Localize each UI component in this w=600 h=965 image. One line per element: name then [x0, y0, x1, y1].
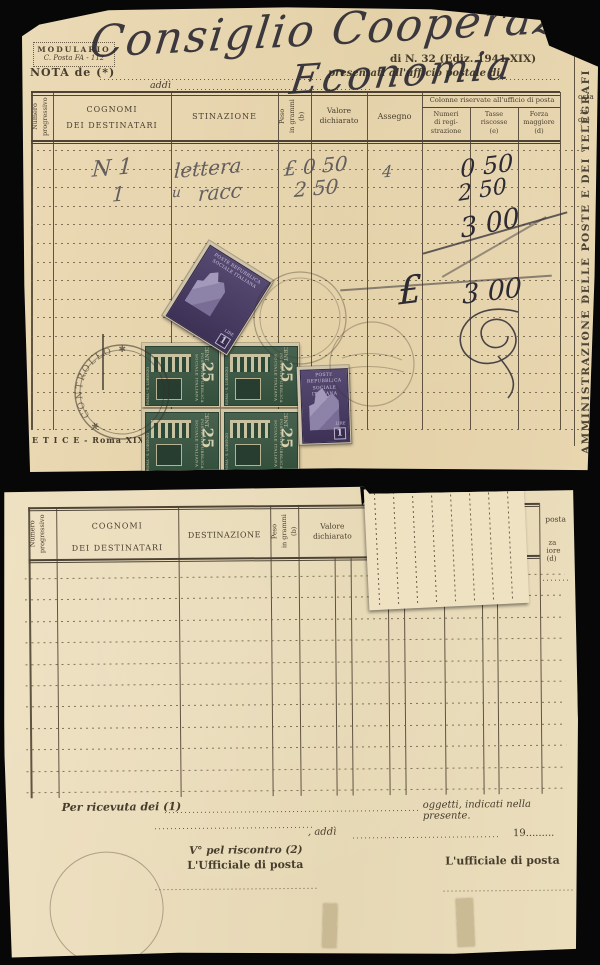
col-assegno: Assegno [367, 112, 422, 122]
ruled-row [26, 723, 566, 729]
stamp-unit-label: CENT. [203, 346, 209, 362]
rule-line [298, 505, 302, 796]
ricevuta-label: Per ricevuta dei (1) [62, 800, 182, 814]
fragment-dotted-rule [469, 488, 475, 600]
green-stamp-25c: ROMA - S. LORENZO POSTE REPUBBLICA SOCIA… [221, 409, 299, 473]
ruled-row [25, 638, 565, 644]
colonnade-motif [230, 420, 270, 438]
col-cognomi: COGNOMI DEI DESTINATARI [56, 515, 178, 559]
rule-line [539, 503, 543, 794]
entry-total-lira-symbol: £ [398, 266, 423, 313]
fragment-dotted-rule [431, 490, 437, 602]
fragment-dotted-rule [412, 491, 418, 603]
stamp-subject-label: ROMA - S. LORENZO [225, 351, 229, 405]
ruled-row [31, 243, 588, 244]
year-label: 19......... [513, 828, 554, 839]
basilica-motif [235, 444, 261, 466]
ruled-row [25, 616, 565, 622]
footer-dotted-line [155, 827, 315, 829]
signature-dotted-line [443, 890, 575, 892]
col-valore: Valore dichiarato [311, 106, 367, 126]
stamp-value: 25 [199, 362, 217, 383]
stamp-value: 1 [334, 427, 347, 439]
administration-side-text: AMMINISTRAZIONE DELLE POSTE E DEI TELEGR… [580, 74, 592, 454]
edge-fragment-za: za [548, 539, 556, 547]
rule-line [351, 557, 354, 795]
signature-dotted-line [155, 888, 317, 890]
rule-line [31, 140, 560, 142]
ruled-row [26, 681, 566, 687]
addi-dotted-line [353, 836, 501, 838]
rule-line [31, 143, 560, 144]
col-peso: Peso in grammi (b) [270, 507, 298, 556]
rule-line [178, 506, 182, 797]
stamp-value: 25 [199, 428, 217, 449]
edge-fragment-posta: posta [545, 515, 566, 524]
entry-row2-qty: 1 [111, 181, 125, 206]
entry-row2-valore: 2 50 [293, 174, 339, 202]
stamp-unit-label: CENT. [282, 412, 288, 428]
ruled-row [31, 262, 588, 263]
top-document: MODULARIO C. Posta FA - 112 di N. 32 (Ed… [22, 6, 598, 472]
stamp-value: 25 [278, 428, 296, 449]
scan-stage: MODULARIO C. Posta FA - 112 di N. 32 (Ed… [0, 0, 600, 965]
entry-row2-ditto: u [172, 185, 182, 202]
fragment-dotted-rule [450, 489, 456, 601]
col-numero: Numero progressivo [28, 509, 56, 558]
fragment-dotted-rule [507, 487, 513, 599]
embossed-circle [49, 851, 164, 965]
ricevuta-dotted-line [165, 810, 420, 813]
ruled-row [26, 702, 566, 708]
entry-row1-assegno-mark: 4 [382, 161, 393, 181]
entry-row2-desc: racc [197, 178, 242, 206]
overlapping-paper-fragment [364, 482, 530, 610]
nota-dotted-line [100, 79, 322, 80]
ruled-row [27, 788, 567, 794]
postmark-faint [326, 318, 418, 410]
tape-strip [456, 898, 475, 947]
fragment-dotted-rule [393, 492, 399, 604]
col-valore: Valore dichiarato [298, 521, 366, 541]
edge-fragment-iore: iore [546, 547, 560, 555]
edge-fragment-d: (d) [547, 555, 557, 563]
col-tasse-riscosse: Tasse riscosse (e) [470, 110, 518, 135]
svg-text:✱ CONTROLLO ✱: ✱ CONTROLLO ✱ [61, 332, 133, 432]
col-cognomi: COGNOMI DEI DESTINATARI [53, 102, 171, 134]
col-numero: Numero progressivo [31, 94, 53, 139]
ruled-row [26, 745, 566, 751]
riscontro-label: V° pel riscontro (2) [189, 844, 303, 857]
rule-line [335, 558, 338, 796]
entry-row1-qty: N 1 [91, 154, 132, 183]
fragment-dotted-rule [488, 488, 494, 600]
basilica-motif [156, 444, 182, 466]
addi-label: , addì [308, 827, 336, 838]
ufficiale-label-left: L'Ufficiale di posta [187, 858, 303, 872]
ufficiale-label-right: L'ufficiale di posta [445, 854, 560, 868]
edge-dotted-line [543, 580, 569, 581]
table-grid [2, 484, 576, 489]
signature-flourish [440, 304, 550, 404]
basilica-motif [235, 378, 261, 400]
col-numeri-registrazione: Numeri di regi- strazione [422, 110, 470, 135]
bottom-document: Numero progressivo COGNOMI DEI DESTINATA… [2, 484, 580, 960]
col-forza-maggiore: Forza maggiore (d) [518, 110, 560, 135]
col-destinazione: STINAZIONE [171, 112, 278, 122]
ruled-row [26, 766, 566, 772]
ruled-row [25, 659, 565, 665]
office-columns-title: Colonne riservate all'ufficio di posta [422, 96, 562, 105]
tape-strip [322, 903, 337, 947]
col-destinazione: DESTINAZIONE [178, 530, 270, 541]
nota-label: NOTA de (*) [30, 66, 115, 79]
stamp-subject-label: ROMA - S. LORENZO [225, 417, 229, 471]
fragment-dotted-rule [374, 493, 380, 605]
stamp-unit-label: LIRE [335, 420, 345, 425]
rule-line [574, 42, 575, 446]
addi-label: addì [150, 80, 171, 91]
rule-line [422, 107, 560, 108]
green-stamp-design: ROMA - S. LORENZO POSTE REPUBBLICA SOCIA… [224, 412, 298, 472]
oggetti-label: oggetti, indicati nella presente. [423, 798, 579, 821]
stamp-unit-label: CENT. [203, 412, 209, 428]
